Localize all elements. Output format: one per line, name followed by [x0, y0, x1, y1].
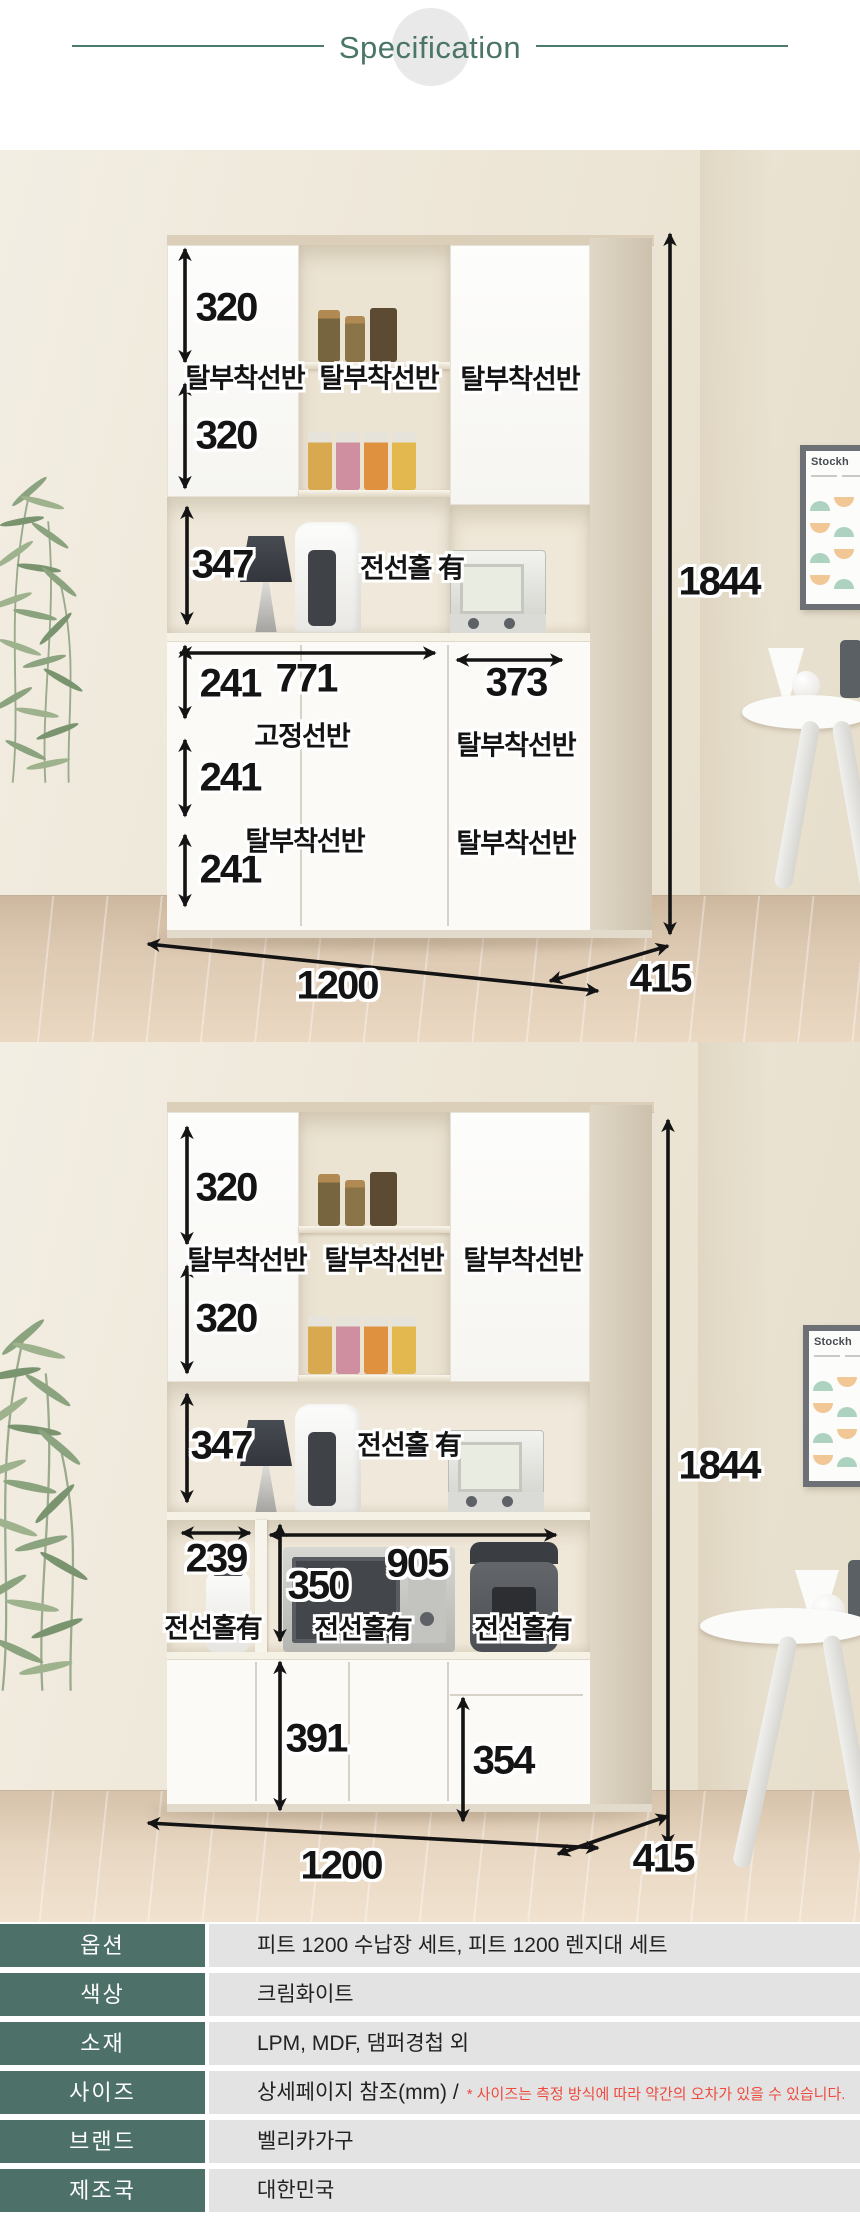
- row-value: 대한민국: [209, 2169, 860, 2212]
- jar: [318, 1174, 340, 1226]
- tea-box: [370, 308, 397, 362]
- dim-241-b: 241: [200, 756, 261, 801]
- microwave-knob: [420, 1612, 434, 1626]
- spec-table: 옵션 피트 1200 수납장 세트, 피트 1200 렌지대 세트 색상 크림화…: [0, 1924, 860, 2218]
- poster-pattern: [811, 1371, 860, 1471]
- row-label: 색상: [0, 1973, 205, 2016]
- table-row-brand: 브랜드 벨리카가구: [0, 2120, 860, 2163]
- table-row-material: 소재 LPM, MDF, 댐퍼경첩 외: [0, 2022, 860, 2065]
- label-wire-hole: 전선홀有: [314, 1608, 412, 1647]
- poster-caption-line: [845, 1355, 860, 1357]
- label-detachable-shelf: 탈부착선반: [187, 1239, 306, 1278]
- toaster-glass: [460, 564, 524, 614]
- dim-771: 771: [276, 657, 337, 702]
- label-detachable-shelf: 탈부착선반: [319, 357, 438, 396]
- vase-dark-bottle: [840, 640, 860, 698]
- toaster-control-strip: [450, 614, 546, 634]
- toaster-knob: [468, 618, 479, 629]
- label-detachable-shelf: 탈부착선반: [463, 1239, 582, 1278]
- cabinet-top-edge: [167, 1102, 654, 1112]
- label-fixed-shelf: 고정선반: [254, 715, 349, 754]
- size-value: 상세페이지 참조(mm) /: [257, 2081, 459, 2104]
- toaster-knob: [466, 1496, 477, 1507]
- drawer-seam: [450, 1694, 583, 1696]
- poster-title: Stockh: [814, 1336, 852, 1348]
- row-label: 제조국: [0, 2169, 205, 2212]
- counter-top: [167, 1512, 590, 1520]
- dim-1844-height: 1844: [679, 560, 760, 605]
- tea-box: [370, 1172, 397, 1226]
- pasta-jar: [364, 1316, 388, 1374]
- counter-top: [167, 633, 590, 641]
- dim-239: 239: [186, 1537, 247, 1582]
- product-spec-page: Specification: [0, 0, 860, 2239]
- dim-354: 354: [473, 1739, 534, 1784]
- photo-2-range-set: Stockh: [0, 1042, 860, 1922]
- page-title: Specification: [0, 30, 860, 66]
- label-wire-hole: 전선홀有: [164, 1607, 262, 1646]
- spec-header: Specification: [0, 0, 860, 150]
- hutch-bottom-shelf: [299, 490, 450, 497]
- toaster-control-strip: [448, 1492, 544, 1512]
- unit-divider-seam: [447, 645, 449, 926]
- dim-1844-height: 1844: [679, 1444, 760, 1489]
- size-tolerance-note: * 사이즈는 측정 방식에 따라 약간의 오차가 있을 수 있습니다.: [467, 2086, 846, 2103]
- wall-poster: Stockh: [803, 1325, 860, 1487]
- pasta-jar: [308, 1316, 332, 1374]
- poster-caption-line: [842, 475, 860, 477]
- poster-pattern: [808, 491, 860, 595]
- door-seam: [348, 1662, 350, 1801]
- cabinet-side-panel: [590, 238, 652, 938]
- cabinet-plinth: [167, 930, 652, 938]
- row-label: 소재: [0, 2022, 205, 2065]
- jar: [345, 1180, 365, 1226]
- row-value: 벨리카가구: [209, 2120, 860, 2163]
- cabinet-side-panel: [590, 1105, 652, 1812]
- pasta-jar: [336, 1316, 360, 1374]
- row-value: 크림화이트: [209, 1973, 860, 2016]
- label-wire-hole: 전선홀 有: [360, 547, 464, 586]
- jar: [345, 316, 365, 362]
- pasta-jar: [308, 432, 332, 490]
- row-value: 피트 1200 수납장 세트, 피트 1200 렌지대 세트: [209, 1924, 860, 1967]
- row-label: 브랜드: [0, 2120, 205, 2163]
- bay-bottom-edge: [167, 1652, 590, 1659]
- pasta-jar: [336, 432, 360, 490]
- dim-320-second: 320: [196, 414, 257, 459]
- dim-350: 350: [288, 1564, 349, 1609]
- unit-divider-seam: [447, 1662, 449, 1801]
- row-value: LPM, MDF, 댐퍼경첩 외: [209, 2022, 860, 2065]
- cooker-lid: [470, 1542, 558, 1564]
- coffee-machine-front: [308, 1432, 336, 1506]
- cabinet-top-edge: [167, 235, 654, 245]
- wall-poster: Stockh: [800, 445, 860, 610]
- dim-391: 391: [286, 1717, 347, 1762]
- toaster-glass: [458, 1442, 522, 1492]
- label-detachable-shelf: 탈부착선반: [185, 357, 304, 396]
- pasta-jar: [364, 432, 388, 490]
- dim-1200-width: 1200: [297, 964, 378, 1009]
- jar: [318, 310, 340, 362]
- label-detachable-shelf: 탈부착선반: [456, 724, 575, 763]
- cabinet-plinth: [167, 1804, 652, 1812]
- toaster-knob: [502, 1496, 513, 1507]
- dim-320-top: 320: [196, 1166, 257, 1211]
- table-row-size: 사이즈 상세페이지 참조(mm) /* 사이즈는 측정 방식에 따라 약간의 오…: [0, 2071, 860, 2114]
- table-row-color: 색상 크림화이트: [0, 1973, 860, 2016]
- label-detachable-shelf: 탈부착선반: [324, 1239, 443, 1278]
- row-label: 옵션: [0, 1924, 205, 1967]
- dim-320-second: 320: [196, 1297, 257, 1342]
- label-wire-hole: 전선홀有: [474, 1608, 572, 1647]
- label-wire-hole: 전선홀 有: [357, 1424, 461, 1463]
- hutch-bottom-shelf: [299, 1375, 450, 1382]
- table-row-option: 옵션 피트 1200 수납장 세트, 피트 1200 렌지대 세트: [0, 1924, 860, 1967]
- poster-caption-line: [814, 1355, 840, 1357]
- dim-347: 347: [191, 1424, 252, 1469]
- toaster-knob: [504, 618, 515, 629]
- pasta-jar: [392, 432, 416, 490]
- label-detachable-shelf: 탈부착선반: [460, 358, 579, 397]
- poster-title: Stockh: [811, 456, 849, 468]
- dim-373: 373: [486, 661, 547, 706]
- coffee-machine-front: [308, 550, 336, 626]
- door-seam: [255, 1662, 257, 1801]
- poster-caption-line: [811, 475, 837, 477]
- pasta-jar: [392, 1316, 416, 1374]
- dim-347: 347: [192, 543, 253, 588]
- label-detachable-shelf: 탈부착선반: [245, 820, 364, 859]
- dim-1200-width: 1200: [301, 1844, 382, 1889]
- hutch-shelf: [299, 1226, 450, 1233]
- dim-320-top: 320: [196, 286, 257, 331]
- dim-241-a: 241: [200, 662, 261, 707]
- row-label: 사이즈: [0, 2071, 205, 2114]
- label-detachable-shelf: 탈부착선반: [456, 822, 575, 861]
- dim-905: 905: [387, 1542, 448, 1587]
- row-value: 상세페이지 참조(mm) /* 사이즈는 측정 방식에 따라 약간의 오차가 있…: [209, 2071, 860, 2114]
- photo-1-storage-set: Stockh: [0, 150, 860, 1042]
- table-row-country: 제조국 대한민국: [0, 2169, 860, 2212]
- dim-415-depth: 415: [630, 957, 691, 1002]
- dim-415-depth: 415: [633, 1837, 694, 1882]
